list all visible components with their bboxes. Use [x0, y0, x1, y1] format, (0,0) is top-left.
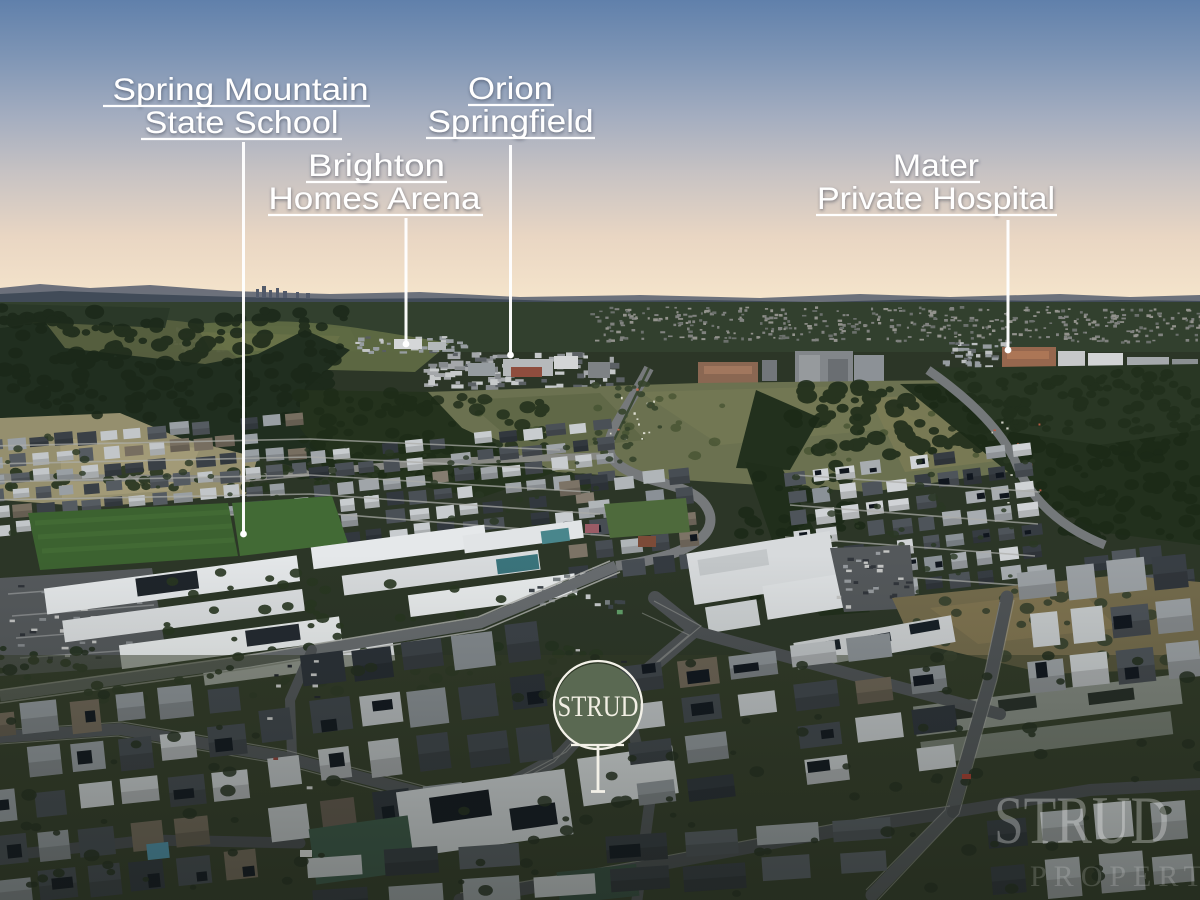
svg-text:PROPERTY: PROPERTY — [1030, 860, 1200, 893]
svg-text:Mater: Mater — [893, 147, 979, 183]
svg-text:STRUD: STRUD — [558, 690, 639, 723]
svg-text:STRUD: STRUD — [994, 782, 1169, 858]
svg-text:Brighton: Brighton — [308, 147, 445, 183]
svg-text:State School: State School — [145, 104, 339, 140]
svg-text:Homes Arena: Homes Arena — [269, 180, 482, 216]
svg-text:Springfield: Springfield — [428, 103, 594, 139]
svg-text:Private Hospital: Private Hospital — [817, 180, 1055, 216]
svg-text:Spring Mountain: Spring Mountain — [113, 71, 369, 107]
svg-text:Orion: Orion — [468, 70, 553, 106]
